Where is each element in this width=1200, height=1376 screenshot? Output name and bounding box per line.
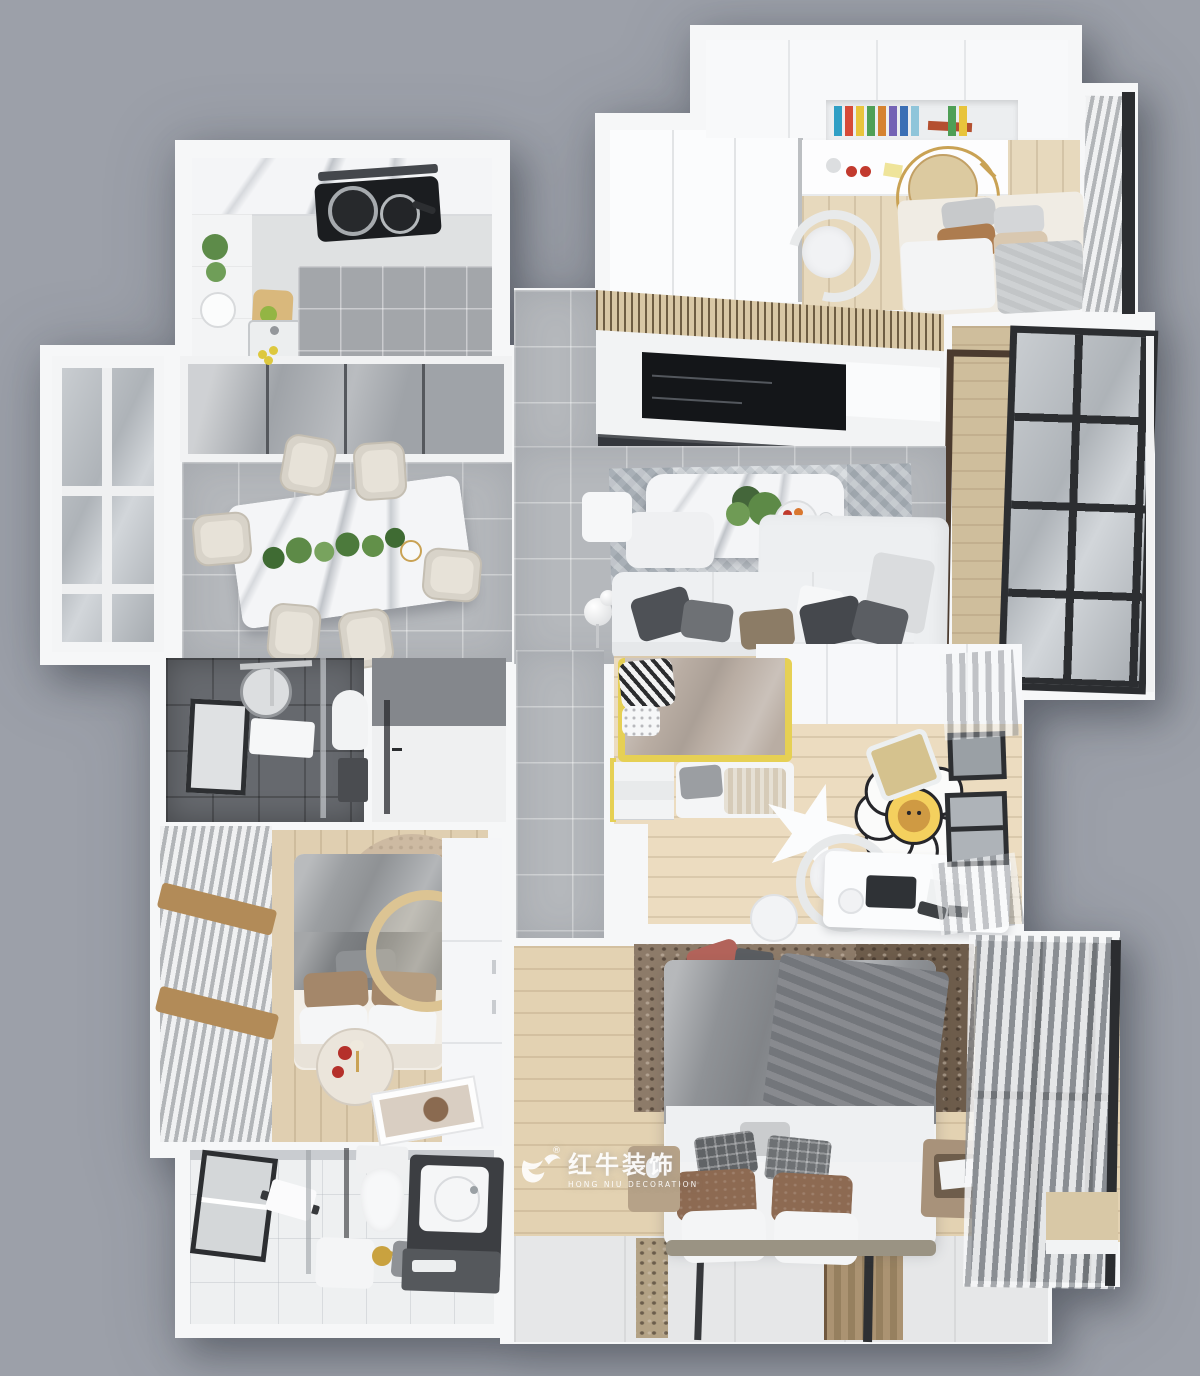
shelf-towel	[412, 1260, 456, 1272]
chair-seat	[287, 441, 330, 489]
bookshelf-niche	[826, 100, 1018, 140]
book-spine	[889, 106, 897, 136]
balcony-window	[998, 326, 1159, 695]
bedroom2-pillow-brown	[303, 970, 369, 1009]
book-spine	[834, 106, 842, 136]
serving-plate	[200, 292, 236, 328]
greenery-sprig	[261, 545, 286, 570]
faucet	[270, 326, 279, 335]
bed-stair-step	[614, 762, 674, 782]
closet-divider	[422, 364, 425, 454]
watermark-text: 红牛装饰 HONG NIU DECORATION	[568, 1152, 698, 1189]
bath1-round-mirror	[240, 666, 292, 718]
book-spine	[845, 106, 853, 136]
hallway-tile	[516, 650, 604, 938]
tv-shelf-line	[652, 397, 742, 405]
kids-white-pillow	[622, 706, 660, 736]
book-spine	[900, 106, 908, 136]
book-spine	[867, 106, 875, 136]
basin-faucet	[470, 1186, 478, 1194]
kids-sheer-curtain-bottom	[931, 853, 1024, 936]
brand-name: 红牛装饰	[568, 1152, 698, 1178]
door-runner-panel	[636, 1238, 668, 1338]
bath1-dark-shelf	[338, 758, 368, 802]
bath2-glass-partition	[306, 1150, 311, 1274]
pen-cup	[826, 158, 841, 173]
book-spine	[911, 106, 919, 136]
artwork-image	[379, 1084, 474, 1137]
wardrobe-seam	[826, 644, 828, 724]
window-bench	[1046, 1192, 1118, 1244]
brand-subtitle: HONG NIU DECORATION	[568, 1180, 698, 1189]
study-blanket-gray	[994, 240, 1086, 315]
chair-seat	[200, 519, 245, 559]
red-desk-item	[860, 166, 871, 177]
sofa-pillow-gray	[680, 599, 735, 644]
book-spine	[948, 106, 956, 136]
study-chair-seat	[802, 226, 854, 278]
greenery-sprig	[361, 534, 386, 559]
red-decor	[332, 1066, 344, 1078]
greenery-sprig	[284, 536, 313, 565]
shower-glass-partition	[320, 658, 326, 818]
lamp-stem	[596, 624, 599, 648]
window-bench-trim	[1046, 1240, 1118, 1254]
bedroom2-curtain	[160, 826, 272, 1142]
round-stool	[750, 894, 798, 942]
bath1-toilet	[332, 690, 368, 750]
study-window-bar	[1122, 92, 1135, 314]
wardrobe-handle	[492, 1000, 496, 1014]
greenery-sprig	[313, 541, 336, 564]
book-spine	[878, 106, 886, 136]
storage-glass-door	[384, 700, 390, 814]
master-bed-footband	[666, 1240, 936, 1256]
study-duvet-white	[900, 238, 996, 313]
chair-seat	[430, 555, 475, 595]
bunk-pillow-gray	[679, 764, 724, 800]
wardrobe-seam	[442, 940, 502, 942]
basin-bowl	[434, 1176, 480, 1222]
dining-chair	[277, 432, 338, 498]
entry-corridor-tile	[514, 290, 598, 462]
shelf-fruit	[264, 356, 273, 365]
cabinet-seam	[788, 40, 790, 138]
bull-icon	[518, 1150, 562, 1194]
cooking-pot-large	[328, 186, 378, 236]
potted-plant	[202, 234, 228, 260]
shower-pipe	[270, 664, 274, 706]
greenery-sprig	[334, 531, 361, 558]
gold-lamp-shade	[350, 1040, 364, 1051]
kids-sheer-curtain-top	[939, 650, 1019, 741]
chair-seat	[274, 611, 314, 656]
kids-side-cabinet	[614, 824, 648, 926]
bed-stair-step	[614, 781, 674, 801]
window-glass	[952, 736, 1001, 776]
balcony-sill	[1146, 336, 1154, 692]
dining-chair	[352, 440, 408, 501]
coffee-table-lower-tier	[626, 512, 714, 568]
storage-dark-wall	[372, 658, 506, 726]
bay-window-mullion	[102, 368, 112, 642]
gold-lamp-stem	[356, 1048, 359, 1072]
gold-bowl	[400, 540, 422, 562]
tv-wall-niche	[846, 362, 940, 422]
storage-stool	[315, 1237, 375, 1289]
registered-mark: ®	[552, 1146, 561, 1156]
closet-room-floor	[610, 130, 802, 302]
dining-chair	[421, 547, 483, 604]
side-cube-table	[582, 492, 632, 542]
desk-lamp	[838, 888, 864, 914]
balcony-window-glass	[1005, 333, 1151, 687]
closet-divider	[344, 364, 347, 454]
bath1-towel	[249, 718, 315, 758]
sliding-closet-mirror	[188, 364, 504, 454]
dining-chair	[191, 511, 253, 568]
closet-door-seam	[734, 130, 736, 302]
bed-stair-step	[614, 800, 674, 820]
gold-kettle	[372, 1246, 392, 1266]
shelf-fruit	[269, 346, 278, 355]
laptop	[865, 875, 916, 909]
wardrobe-seam	[896, 644, 898, 724]
wardrobe-seam	[442, 1042, 502, 1044]
plant-centerpiece	[726, 502, 750, 526]
closet-door-seam	[672, 130, 674, 302]
floorplan-stage: ® 红牛装饰 HONG NIU DECORATION	[0, 0, 1200, 1376]
pillow-white	[773, 1211, 859, 1266]
red-desk-item	[846, 166, 857, 177]
book-spine	[959, 106, 967, 136]
tv-shelf-line	[652, 375, 772, 384]
chair-seat	[361, 449, 400, 493]
tv-panel	[642, 352, 846, 430]
watermark: ® 红牛装饰 HONG NIU DECORATION	[518, 1146, 688, 1206]
chair-seat	[345, 616, 386, 663]
potted-herb	[206, 262, 226, 282]
zebra-pillow	[618, 657, 677, 710]
book-spine	[856, 106, 864, 136]
closet-divider	[266, 364, 269, 454]
bath1-window	[186, 698, 251, 795]
glass-door-handle	[392, 748, 402, 751]
wardrobe-handle	[492, 960, 496, 974]
dining-chair	[266, 602, 323, 664]
window-crossbar	[201, 1197, 267, 1210]
